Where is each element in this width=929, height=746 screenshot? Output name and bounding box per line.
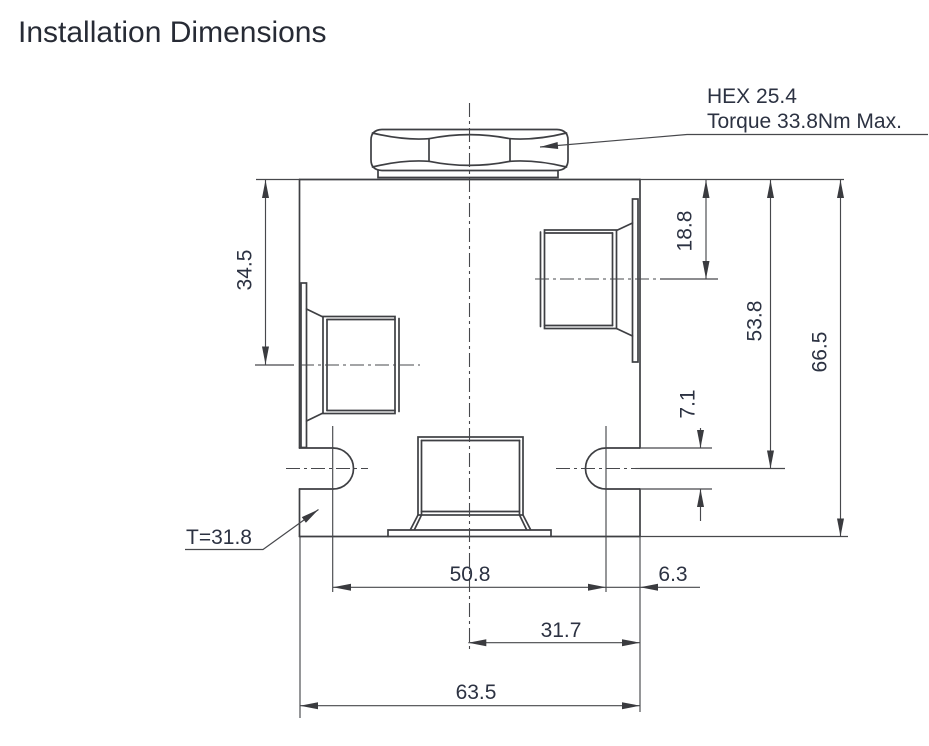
dim-label-31-7: 31.7: [541, 619, 582, 642]
dim-label-34-5: 34.5: [234, 250, 257, 291]
hex-torque-callout: HEX 25.4 Torque 33.8Nm Max.: [540, 85, 928, 149]
washer: [378, 171, 558, 178]
dim-left-port-center: 34.5: [234, 180, 269, 365]
dim-label-50-8: 50.8: [450, 563, 491, 586]
page: Installation Dimensions: [0, 0, 929, 746]
dim-right-port-center: 18.8: [674, 180, 710, 279]
dim-label-66-5: 66.5: [809, 332, 832, 373]
mounting-slot-left: [286, 426, 368, 592]
page-title: Installation Dimensions: [18, 16, 326, 49]
leader-arrow-thickness: [302, 510, 319, 523]
dim-label-6-3: 6.3: [658, 563, 687, 586]
dim-overall-width: 63.5: [300, 681, 640, 709]
dim-label-18-8: 18.8: [674, 211, 697, 252]
dim-label-53-8: 53.8: [744, 301, 767, 342]
dim-center-to-right-edge: 31.7: [468, 619, 640, 646]
dim-slot-spacing-and-edge: 50.8 6.3: [333, 563, 700, 591]
dim-label-63-5: 63.5: [456, 681, 497, 704]
dim-overall-height: 66.5: [809, 180, 844, 537]
installation-dimensions-drawing: Installation Dimensions: [0, 0, 929, 746]
left-port: [300, 283, 420, 448]
dim-slot-center-from-top: 53.8: [744, 180, 774, 469]
hex-label: HEX 25.4: [707, 85, 797, 108]
torque-label: Torque 33.8Nm Max.: [707, 110, 902, 133]
thickness-callout: T=31.8: [185, 510, 319, 550]
dim-slot-width: 7.1: [677, 389, 704, 521]
thickness-label: T=31.8: [186, 526, 252, 549]
dim-label-7-1: 7.1: [677, 389, 700, 418]
leader-arrow-hex: [540, 142, 558, 149]
